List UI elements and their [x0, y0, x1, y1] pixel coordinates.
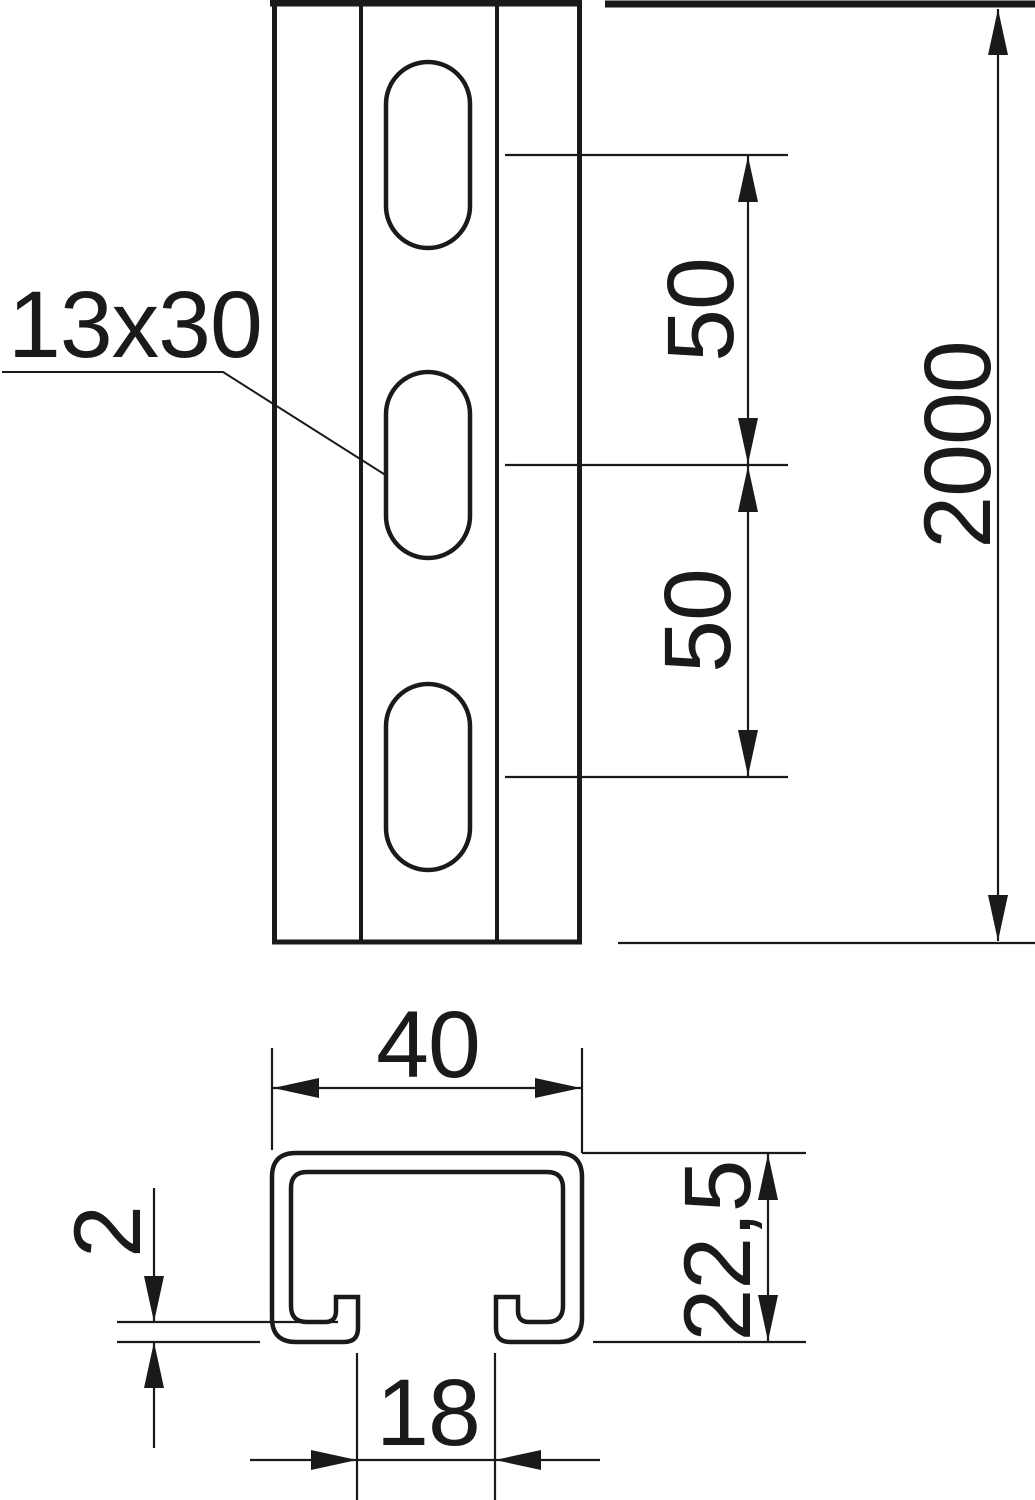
profile-rail-drawing: 13x30 50 50 2000: [0, 0, 1035, 1500]
slot-size-callout: 13x30: [2, 272, 387, 476]
slot-size-leader-line: [2, 372, 387, 476]
slot-opening-value: 18: [376, 1360, 480, 1466]
slot-hole-1: [386, 62, 470, 248]
arrowhead-down-icon: [738, 730, 758, 776]
arrowhead-right-icon: [311, 1450, 357, 1470]
rail-length-value: 2000: [905, 341, 1011, 548]
slot-size-label: 13x30: [8, 272, 262, 378]
rail-section-view: [272, 1153, 582, 1342]
arrowhead-down-icon: [738, 418, 758, 464]
arrowhead-down-icon: [144, 1276, 164, 1322]
arrowhead-down-icon: [988, 895, 1008, 941]
arrowhead-up-icon: [738, 156, 758, 202]
c-profile-cross-section: [272, 1153, 582, 1342]
arrowhead-up-icon: [144, 1342, 164, 1388]
arrowhead-left-icon: [495, 1450, 541, 1470]
arrowhead-left-icon: [273, 1078, 319, 1098]
pitch-upper-value: 50: [648, 258, 754, 362]
arrowhead-right-icon: [535, 1078, 581, 1098]
profile-width-value: 40: [376, 992, 480, 1098]
arrowhead-up-icon: [988, 9, 1008, 55]
arrowhead-up-icon: [738, 466, 758, 512]
rail-length-dimension: 2000: [605, 4, 1035, 943]
rail-body-outline: [275, 1, 580, 942]
slot-opening-dimension: 18: [250, 1353, 600, 1500]
profile-height-value: 22,5: [665, 1161, 771, 1342]
rail-front-view: [270, 1, 582, 942]
profile-width-dimension: 40: [272, 992, 582, 1153]
slot-pitch-dimensions: 50 50: [505, 155, 788, 777]
slot-hole-2: [386, 372, 470, 558]
profile-height-dimension: 22,5: [582, 1153, 806, 1342]
technical-drawing-sheet: 13x30 50 50 2000: [0, 0, 1035, 1500]
slot-hole-3: [386, 684, 470, 870]
pitch-lower-value: 50: [645, 569, 751, 673]
material-thickness-value: 2: [55, 1206, 161, 1258]
